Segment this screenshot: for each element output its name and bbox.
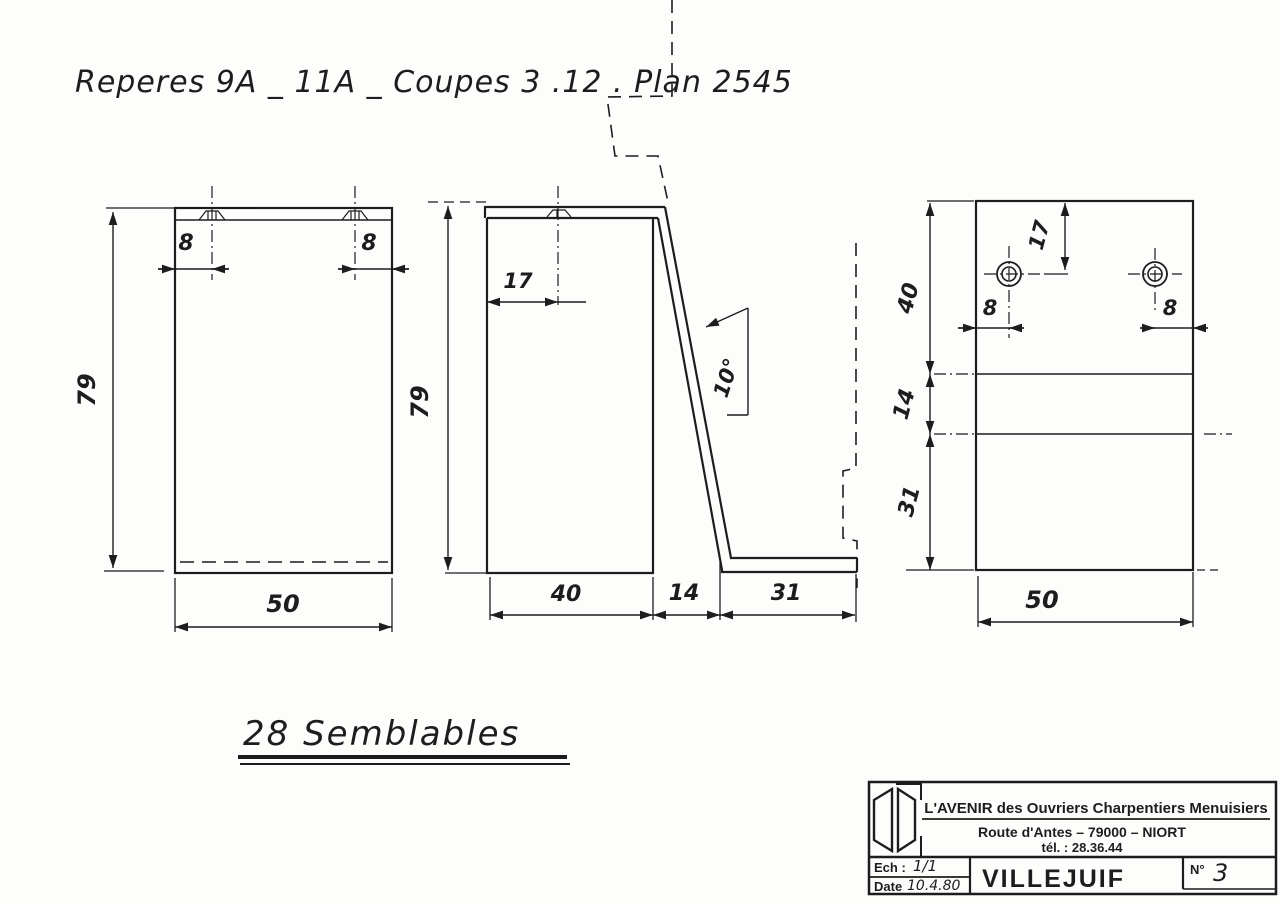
drawing-number-value: 3 [1213,859,1228,887]
front-height-dim: 79 [73,373,101,406]
side-base-dim-40: 40 [550,582,582,607]
side-view: 79 17 10° 40 14 31 [406,186,857,622]
drawing-number-label: N° [1190,862,1205,877]
quantity-note: 28 Semblables [238,714,570,764]
side-angled-strip [658,207,857,572]
side-height-dim: 79 [406,385,434,418]
angle-leader [706,308,748,327]
side-countersink [547,210,571,217]
side-base-dim-14: 14 [669,581,700,606]
date-value: 10.4.80 [907,878,961,894]
drawing-canvas: Reperes 9A _ 11A _ Coupes 3 .12 . Plan 2… [0,0,1280,904]
project-name: VILLEJUIF [982,865,1125,893]
side-base-dim-31: 31 [771,581,802,606]
rear-band-dim-40: 40 [892,280,924,317]
company-logo-icon [874,784,921,857]
side-angle-dim: 10° [709,355,744,400]
front-body [175,208,392,573]
technical-drawing-sheet: Reperes 9A _ 11A _ Coupes 3 .12 . Plan 2… [0,0,1280,904]
rear-band-dim-31: 31 [894,483,926,519]
rear-hole-right-dim: 8 [1163,296,1178,320]
phantom-outline-top [607,0,672,202]
rear-hole-top-dim: 17 [1024,218,1055,253]
company-name: L'AVENIR des Ouvriers Charpentiers Menui… [924,800,1267,817]
date-label: Date [874,879,902,894]
company-address: Route d'Antes – 79000 – NIORT [978,824,1186,840]
quantity-note-text: 28 Semblables [243,714,520,754]
side-flange [485,207,665,218]
sheet-title: Reperes 9A _ 11A _ Coupes 3 .12 . Plan 2… [75,65,793,100]
front-view: 79 8 8 50 [73,186,409,632]
scale-label: Ech : [874,860,906,875]
rear-band-dim-14: 14 [889,386,921,422]
rear-width-dim: 50 [1025,586,1058,614]
title-block: L'AVENIR des Ouvriers Charpentiers Menui… [869,782,1276,894]
front-hole-left-dim: 8 [178,231,193,256]
company-phone: tél. : 28.36.44 [1042,840,1124,855]
rear-hole-left-dim: 8 [983,296,998,320]
scale-value: 1/1 [913,857,937,875]
front-width-dim: 50 [266,590,299,618]
rear-view: 17 8 8 40 14 31 50 [889,201,1232,627]
phantom-outline-right [843,243,857,588]
side-hole-dim: 17 [503,269,533,293]
front-hole-right-dim: 8 [361,231,376,256]
centerline [984,246,1182,338]
